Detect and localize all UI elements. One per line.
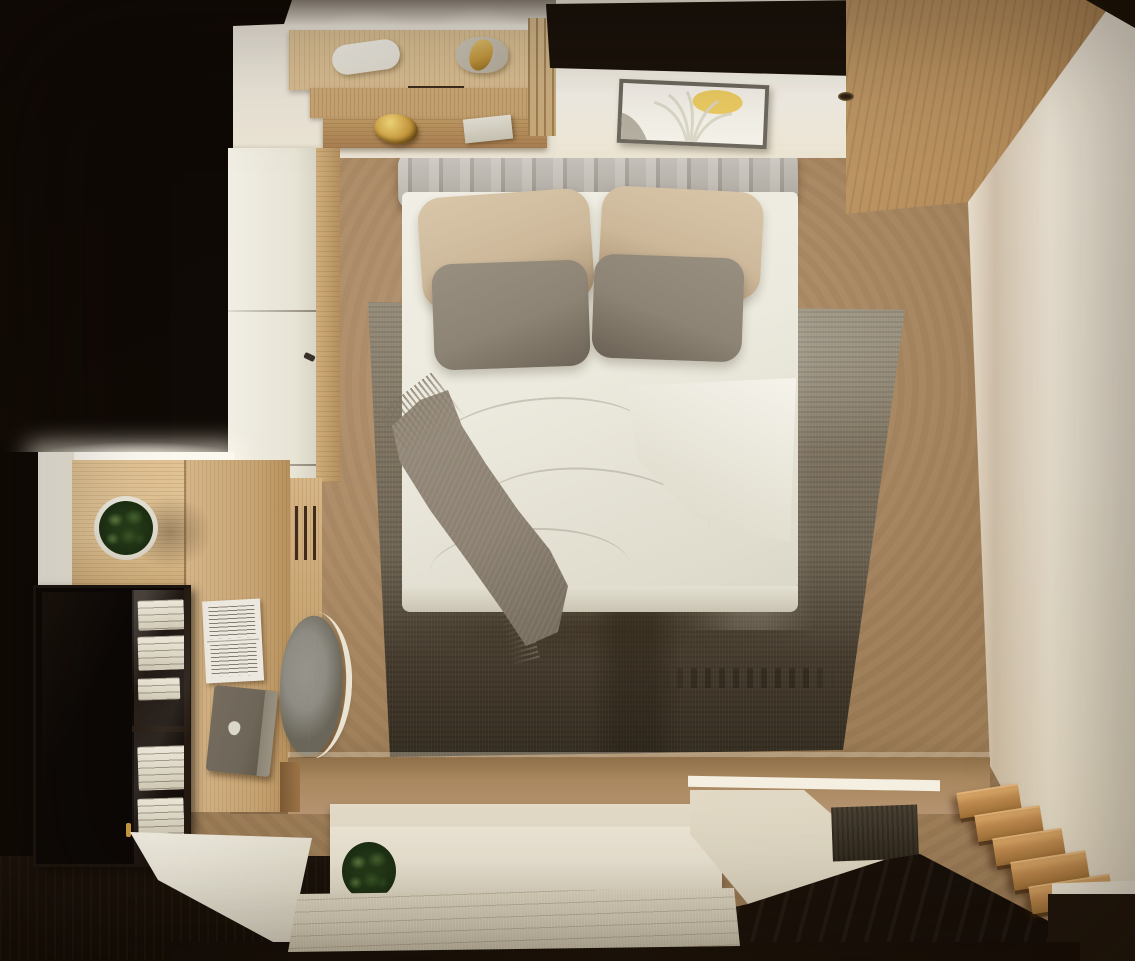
platform-edge-line [288,752,990,757]
wardrobe-side-panel [316,148,340,482]
vanity-shelf-middle [310,88,547,118]
woven-mat [288,888,744,956]
paper-text-lines [210,643,258,677]
recessed-light [838,92,854,101]
rug-reflection [831,805,919,862]
paper-fold-line [207,639,259,643]
paper-document [202,599,264,684]
white-wardrobe [228,148,318,480]
wardrobe-handle [303,352,316,362]
rug-worn-lettering [663,668,835,688]
vanity-shelf-upper [289,30,547,90]
desk-plant [99,501,153,555]
decor-figurine [456,37,508,73]
pillow-gray-left [431,259,591,370]
wall-art-frame [617,79,770,149]
gold-accent [466,37,495,73]
bedroom-render [0,0,1135,961]
paper-text-lines [208,605,256,639]
duvet-foot-fold [402,586,798,612]
wall-art-print [621,83,765,145]
desk-white-panel [36,452,74,588]
bench-plant [342,842,396,900]
laptop-logo [228,721,241,736]
vanity-shelf-lower [323,118,547,148]
glass-reflection [132,590,190,864]
art-corner-shape [621,113,648,140]
display-cabinet [33,585,191,867]
vent-slats [286,506,316,560]
wardrobe-seam [228,310,318,312]
chair-back-frame [308,612,356,762]
pillow-gray-right [591,253,745,362]
desk-chair [276,608,360,764]
laptop [206,685,279,777]
cabinet-sheen [42,592,132,862]
wood-sliver [280,762,300,812]
cabinet-handle [126,823,131,837]
white-book [463,115,513,144]
